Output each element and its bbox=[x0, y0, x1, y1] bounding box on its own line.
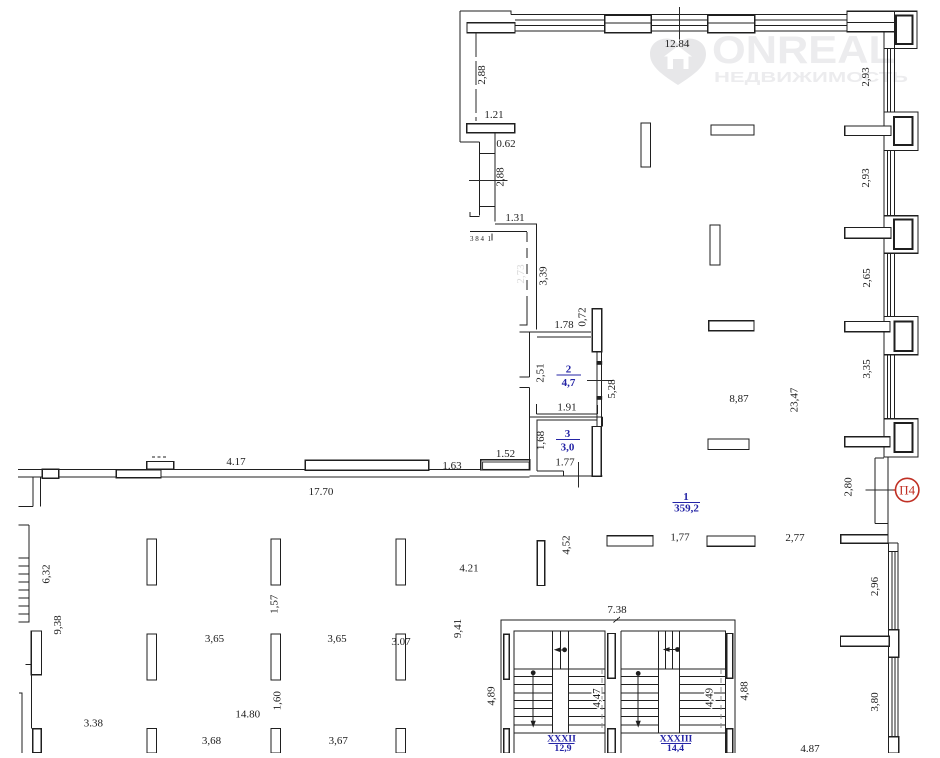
svg-text:3,80: 3,80 bbox=[869, 692, 881, 712]
svg-text:3,35: 3,35 bbox=[861, 359, 873, 379]
svg-text:4.21: 4.21 bbox=[459, 563, 478, 575]
svg-text:3,65: 3,65 bbox=[205, 633, 225, 645]
svg-text:2,73: 2,73 bbox=[515, 264, 527, 284]
svg-text:2,51: 2,51 bbox=[535, 363, 547, 382]
svg-text:4,89: 4,89 bbox=[486, 686, 498, 706]
svg-text:2,96: 2,96 bbox=[869, 576, 881, 596]
svg-text:1,68: 1,68 bbox=[535, 430, 547, 450]
svg-text:4,52: 4,52 bbox=[560, 535, 572, 554]
svg-text:14.80: 14.80 bbox=[235, 709, 260, 721]
svg-text:1.52: 1.52 bbox=[496, 448, 515, 460]
svg-text:1.91: 1.91 bbox=[557, 402, 576, 414]
svg-text:НЕДВИЖИМОСТЬ: НЕДВИЖИМОСТЬ bbox=[714, 70, 908, 86]
svg-text:23,47: 23,47 bbox=[789, 387, 801, 412]
svg-text:5,28: 5,28 bbox=[606, 379, 618, 399]
svg-text:4.17: 4.17 bbox=[226, 456, 246, 468]
svg-text:17.70: 17.70 bbox=[309, 486, 334, 498]
svg-text:1.31: 1.31 bbox=[505, 212, 524, 224]
svg-text:П4: П4 bbox=[899, 483, 915, 498]
svg-text:3,68: 3,68 bbox=[202, 735, 222, 747]
svg-text:1,60: 1,60 bbox=[271, 691, 283, 711]
svg-text:4,88: 4,88 bbox=[739, 681, 751, 701]
svg-text:9,41: 9,41 bbox=[452, 619, 464, 638]
svg-text:1,57: 1,57 bbox=[269, 594, 281, 614]
svg-text:9,38: 9,38 bbox=[52, 615, 64, 635]
svg-text:3 8 4 1: 3 8 4 1 bbox=[470, 235, 492, 243]
svg-text:1.77: 1.77 bbox=[555, 457, 575, 469]
svg-text:2,88: 2,88 bbox=[476, 65, 488, 85]
svg-text:3.07: 3.07 bbox=[391, 636, 411, 648]
svg-text:8,87: 8,87 bbox=[729, 393, 749, 405]
svg-text:1: 1 bbox=[683, 491, 689, 503]
svg-text:3: 3 bbox=[565, 428, 571, 440]
svg-text:14,4: 14,4 bbox=[667, 743, 684, 753]
svg-text:0.62: 0.62 bbox=[496, 138, 515, 150]
svg-text:2,77: 2,77 bbox=[785, 532, 805, 544]
svg-text:12.84: 12.84 bbox=[665, 38, 690, 50]
svg-text:3,39: 3,39 bbox=[538, 266, 550, 286]
svg-text:7.38: 7.38 bbox=[607, 604, 627, 616]
svg-text:3.38: 3.38 bbox=[84, 717, 104, 729]
svg-text:4,7: 4,7 bbox=[562, 377, 576, 389]
svg-text:2,80: 2,80 bbox=[843, 477, 855, 497]
svg-text:1,77: 1,77 bbox=[670, 532, 690, 544]
svg-text:3,0: 3,0 bbox=[561, 442, 575, 454]
svg-text:4,47: 4,47 bbox=[591, 688, 603, 708]
svg-text:6,32: 6,32 bbox=[41, 564, 53, 583]
svg-text:2,93: 2,93 bbox=[860, 67, 872, 87]
svg-text:3,65: 3,65 bbox=[327, 633, 347, 645]
svg-text:1.78: 1.78 bbox=[554, 319, 574, 331]
svg-text:4.87: 4.87 bbox=[800, 743, 820, 753]
svg-text:2,88: 2,88 bbox=[495, 167, 507, 187]
svg-text:2: 2 bbox=[566, 364, 572, 376]
svg-text:359,2: 359,2 bbox=[674, 503, 699, 515]
svg-text:4,49: 4,49 bbox=[703, 687, 715, 707]
svg-text:1.63: 1.63 bbox=[442, 460, 462, 472]
svg-text:12,9: 12,9 bbox=[554, 743, 571, 753]
svg-text:ONREAL: ONREAL bbox=[712, 29, 895, 72]
svg-text:2,65: 2,65 bbox=[861, 268, 873, 288]
svg-text:3,67: 3,67 bbox=[329, 735, 349, 747]
svg-text:0,72: 0,72 bbox=[577, 307, 589, 326]
svg-text:1.21: 1.21 bbox=[484, 109, 503, 121]
svg-text:2,93: 2,93 bbox=[860, 168, 872, 188]
